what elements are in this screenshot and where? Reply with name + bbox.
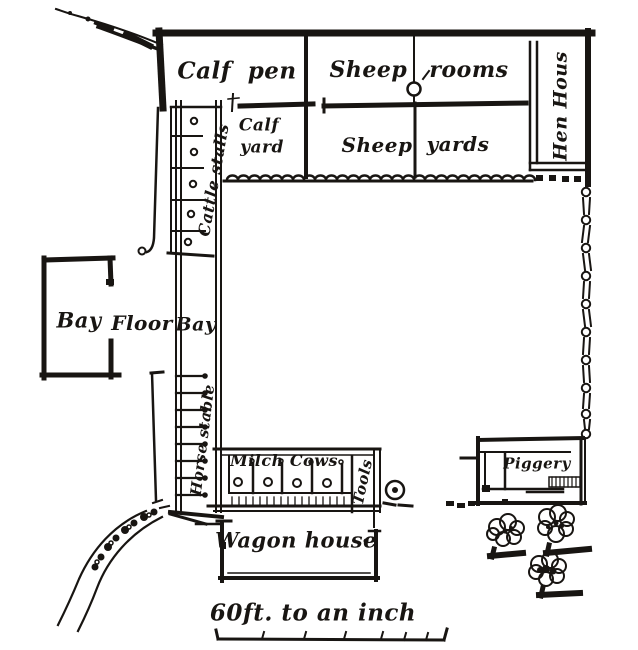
chain-fence [582,188,591,438]
farm-plan-figure: Calf pen Sheep rooms Calf yard Sheep yar… [0,0,638,650]
label-floor: Floor [111,313,173,333]
label-hen-house: Hen Hous [552,51,571,161]
label-calf-yard-2: yard [240,140,284,157]
southwest-lane [58,500,169,631]
scale-bar [216,629,447,640]
yard-scalloped-edge [224,176,535,182]
upper-left-fence [139,108,159,255]
label-piggery: Piggery [503,457,571,472]
well-icon [384,481,412,506]
northwest-lane [56,9,162,49]
label-wagon-house: Wagon house [215,530,377,551]
label-calf-yard-1: Calf [239,118,279,135]
ground-dashes [446,501,475,508]
tree-icon [538,505,589,554]
label-bay-outer: Bay [56,310,101,331]
lower-left-fence [151,372,163,500]
label-sheep-rooms: Sheep rooms [329,59,508,81]
tree-icon [529,552,580,596]
label-sheep-yards-1: Sheep [342,135,413,155]
label-milch-cows: Milch Cows [230,453,338,469]
label-calf-pen: Calf pen [177,60,296,83]
label-bay-barn: Bay [176,316,217,335]
label-sheep-yards-2: yards [427,134,490,154]
label-scale-caption: 60ft. to an inch [210,602,416,625]
tree-icon [487,514,524,557]
dotted-fence [536,175,581,182]
